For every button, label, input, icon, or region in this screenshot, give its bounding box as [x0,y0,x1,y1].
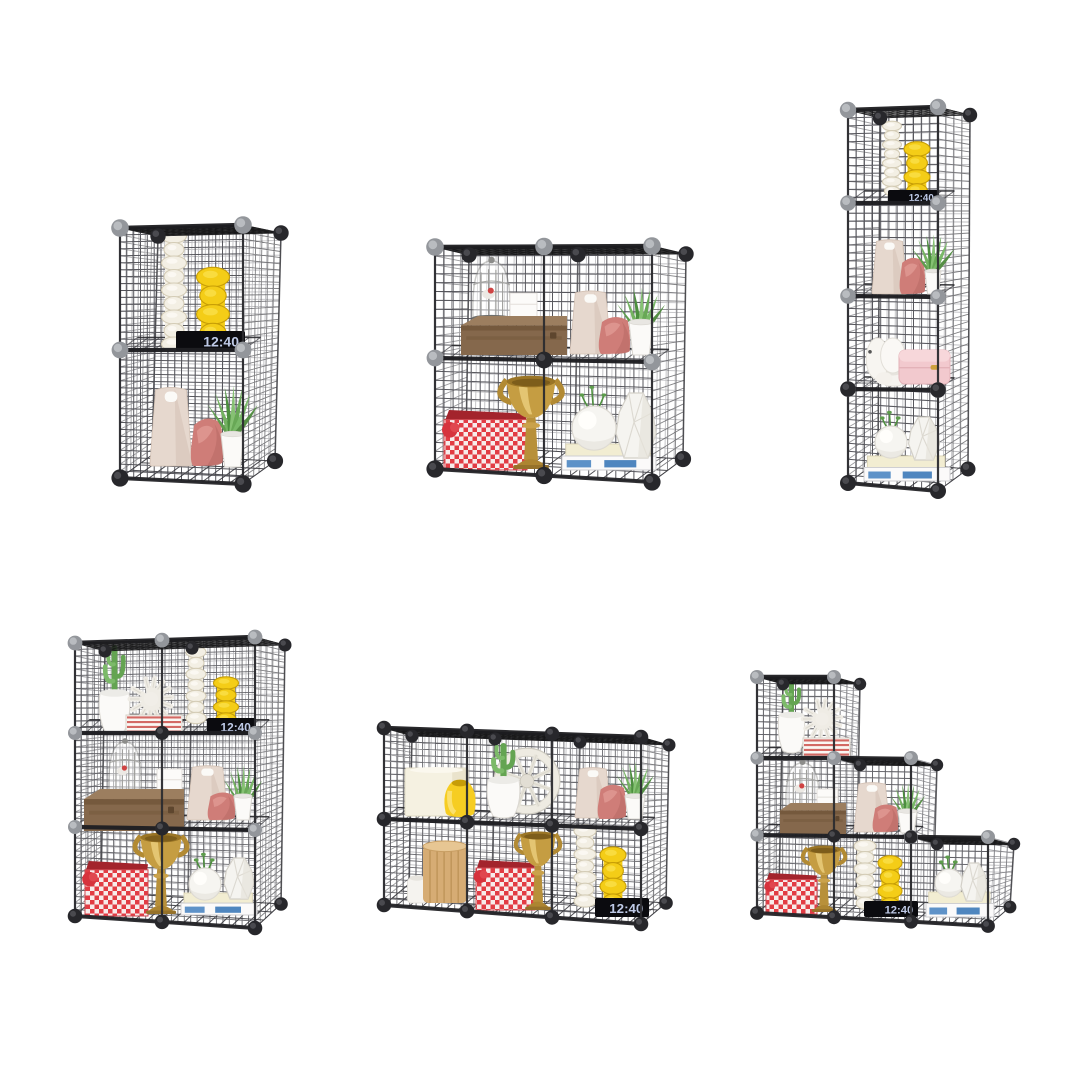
svg-text:12:40: 12:40 [203,334,239,350]
svg-text:12:40: 12:40 [609,901,643,916]
svg-text:12:40: 12:40 [885,905,914,917]
